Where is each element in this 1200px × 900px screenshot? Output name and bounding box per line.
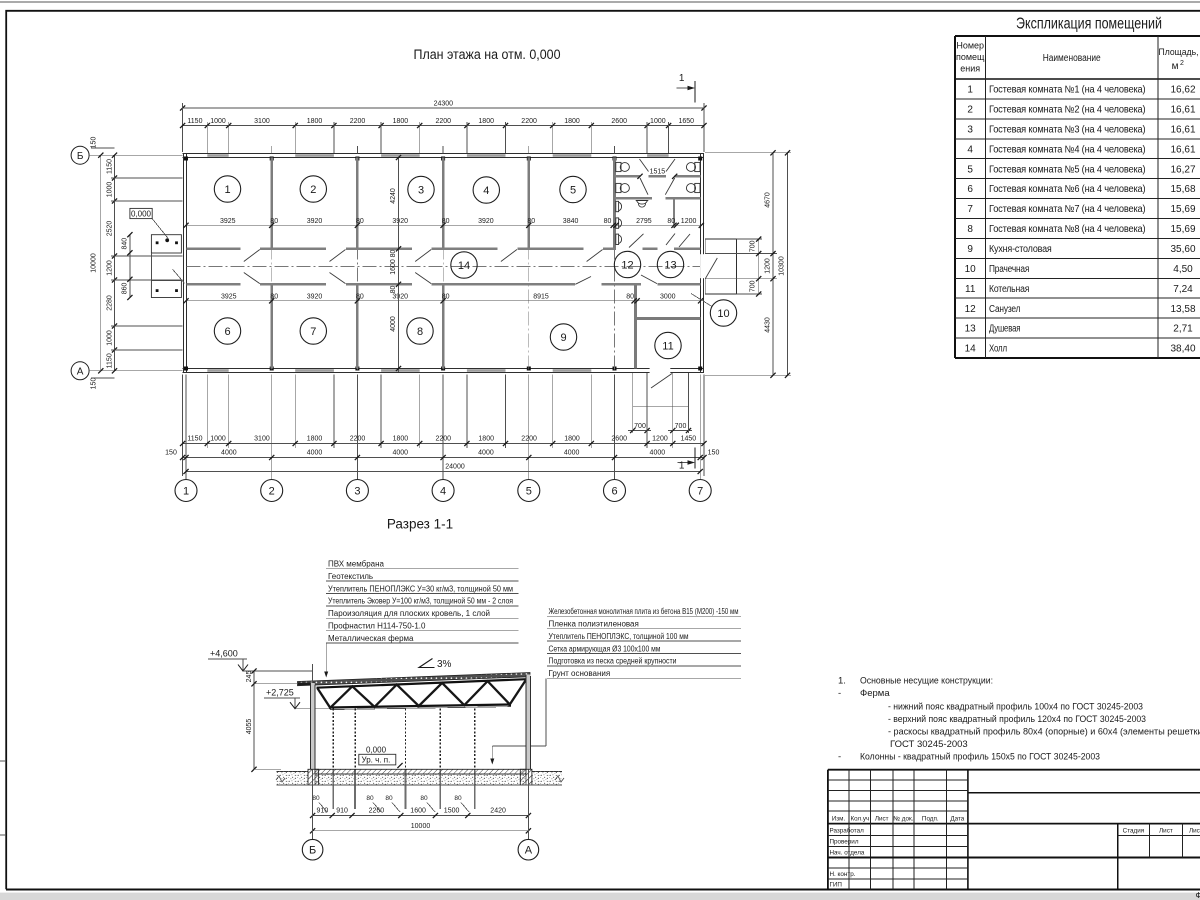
svg-text:910: 910	[336, 808, 348, 815]
svg-text:80: 80	[420, 795, 428, 802]
svg-text:Ур. ч. п.: Ур. ч. п.	[362, 756, 391, 765]
svg-text:150: 150	[91, 137, 98, 149]
svg-text:10: 10	[965, 264, 977, 275]
svg-text:245: 245	[246, 671, 253, 683]
svg-text:Нач. отдела: Нач. отдела	[830, 850, 865, 857]
svg-text:14: 14	[458, 260, 470, 272]
svg-text:4: 4	[440, 486, 446, 498]
svg-text:2200: 2200	[521, 436, 537, 443]
svg-text:Разработал: Разработал	[830, 827, 865, 835]
svg-text:Подготовка из песка средней кр: Подготовка из песка средней крупности	[549, 657, 677, 666]
svg-text:Гостевая комната №2 (на 4 чело: Гостевая комната №2 (на 4 человека)	[989, 105, 1145, 116]
svg-text:24000: 24000	[445, 464, 465, 471]
svg-text:1800: 1800	[478, 118, 494, 125]
svg-text:Наименование: Наименование	[1043, 53, 1101, 64]
svg-text:9: 9	[967, 244, 973, 255]
svg-text:80: 80	[312, 795, 320, 802]
svg-text:+2,725: +2,725	[266, 688, 294, 698]
svg-text:1000: 1000	[106, 330, 113, 346]
svg-text:Листов: Листов	[1189, 828, 1200, 835]
svg-text:Холл: Холл	[989, 344, 1007, 355]
svg-text:Пленка полиэтиленовая: Пленка полиэтиленовая	[549, 620, 639, 629]
svg-text:Лист: Лист	[1159, 828, 1173, 835]
svg-text:16,61: 16,61	[1170, 144, 1195, 155]
svg-text:80: 80	[366, 795, 374, 802]
svg-text:Профнастил Н114-750-1.0: Профнастил Н114-750-1.0	[328, 622, 426, 631]
svg-text:ПВХ мембрана: ПВХ мембрана	[328, 560, 385, 569]
svg-text:Основные несущие конструкции:: Основные несущие конструкции:	[860, 676, 993, 687]
svg-text:8915: 8915	[533, 293, 549, 300]
svg-text:Гостевая комната №1 (на 4 чело: Гостевая комната №1 (на 4 человека)	[989, 85, 1145, 96]
svg-text:Санузел: Санузел	[989, 304, 1021, 315]
svg-text:Утеплитель ПЕНОПЛЭКС У=30 кг/м: Утеплитель ПЕНОПЛЭКС У=30 кг/м3, толщино…	[328, 584, 513, 593]
svg-text:Ферма: Ферма	[860, 688, 890, 699]
svg-text:1: 1	[679, 461, 685, 472]
svg-text:4000: 4000	[650, 450, 666, 457]
svg-text:4670: 4670	[764, 192, 771, 208]
svg-text:3925: 3925	[220, 218, 236, 225]
svg-text:1: 1	[183, 486, 189, 498]
svg-text:8: 8	[417, 326, 423, 338]
svg-text:8: 8	[967, 224, 973, 235]
svg-text:Утеплитель Эковер У=100 кг/м3,: Утеплитель Эковер У=100 кг/м3, толщиной …	[328, 597, 513, 606]
svg-text:Котельная: Котельная	[989, 284, 1029, 295]
svg-text:6: 6	[611, 486, 617, 498]
svg-text:2420: 2420	[490, 808, 506, 815]
svg-text:700: 700	[634, 423, 646, 430]
svg-text:Железобетонная монолитная плит: Железобетонная монолитная плита из бетон…	[549, 607, 739, 616]
svg-text:№ док.: № док.	[893, 815, 913, 822]
svg-text:Геотекстиль: Геотекстиль	[328, 572, 373, 581]
svg-text:ения: ения	[960, 64, 980, 74]
svg-text:6: 6	[967, 184, 973, 195]
svg-text:3920: 3920	[392, 218, 408, 225]
svg-text:Гостевая комната №6 (на 4 чело: Гостевая комната №6 (на 4 человека)	[989, 184, 1145, 195]
svg-text:0,000: 0,000	[131, 209, 152, 218]
svg-text:13,58: 13,58	[1170, 304, 1195, 315]
svg-text:1: 1	[224, 184, 230, 196]
svg-text:Экспликация помещений: Экспликация помещений	[1016, 16, 1162, 33]
svg-text:16,61: 16,61	[1170, 105, 1195, 116]
svg-text:4430: 4430	[764, 317, 771, 333]
svg-text:Грунт основания: Грунт основания	[549, 669, 611, 678]
svg-text:4000: 4000	[564, 450, 580, 457]
svg-text:1800: 1800	[564, 118, 580, 125]
svg-text:10000: 10000	[411, 823, 431, 830]
svg-text:840: 840	[122, 238, 129, 250]
svg-text:10000: 10000	[90, 253, 97, 273]
svg-text:4,50: 4,50	[1173, 264, 1193, 275]
svg-text:3100: 3100	[254, 436, 270, 443]
svg-text:Формат A3: Формат A3	[1196, 891, 1200, 900]
svg-text:Б: Б	[77, 151, 84, 162]
svg-text:2: 2	[1180, 60, 1184, 67]
svg-text:24300: 24300	[434, 101, 454, 108]
svg-text:1000: 1000	[210, 436, 226, 443]
svg-text:80: 80	[527, 218, 535, 225]
svg-text:1600: 1600	[410, 808, 426, 815]
svg-text:3920: 3920	[478, 218, 494, 225]
svg-text:3%: 3%	[437, 659, 452, 670]
svg-text:1600: 1600	[390, 259, 397, 275]
svg-text:1200: 1200	[681, 218, 697, 225]
svg-text:1515: 1515	[650, 169, 666, 176]
svg-text:Площадь,: Площадь,	[1159, 47, 1199, 58]
svg-text:+4,600: +4,600	[210, 649, 238, 659]
svg-text:80: 80	[270, 218, 278, 225]
svg-text:Гостевая комната №5 (на 4 чело: Гостевая комната №5 (на 4 человека)	[989, 164, 1145, 175]
svg-text:-: -	[838, 752, 841, 763]
svg-text:4: 4	[967, 144, 973, 155]
svg-text:7: 7	[310, 326, 316, 338]
svg-text:3920: 3920	[307, 293, 323, 300]
svg-text:2: 2	[310, 184, 316, 196]
svg-text:- верхний пояс квадратный проф: - верхний пояс квадратный профиль 120х4 …	[888, 714, 1146, 725]
svg-text:12: 12	[965, 304, 977, 315]
svg-text:16,27: 16,27	[1170, 164, 1195, 175]
svg-text:3: 3	[418, 185, 424, 197]
svg-text:11: 11	[965, 284, 976, 295]
svg-text:38,40: 38,40	[1170, 344, 1195, 355]
svg-text:1450: 1450	[681, 436, 697, 443]
svg-text:Кухня-столовая: Кухня-столовая	[989, 244, 1052, 255]
svg-text:7,24: 7,24	[1173, 284, 1193, 295]
svg-text:10: 10	[717, 308, 729, 320]
svg-text:2200: 2200	[436, 118, 452, 125]
svg-text:Гостевая комната №8 (на 4 чело: Гостевая комната №8 (на 4 человека)	[989, 224, 1145, 235]
svg-text:2260: 2260	[369, 808, 385, 815]
svg-text:4000: 4000	[221, 450, 237, 457]
svg-text:Прачечная: Прачечная	[989, 264, 1029, 275]
svg-text:15,68: 15,68	[1170, 184, 1195, 195]
svg-text:80: 80	[356, 218, 364, 225]
svg-text:1500: 1500	[444, 808, 460, 815]
svg-text:1650: 1650	[679, 118, 695, 125]
svg-text:15,69: 15,69	[1170, 204, 1195, 215]
svg-text:А: А	[525, 845, 533, 857]
svg-text:План этажа на отм. 0,000: План этажа на отм. 0,000	[414, 47, 561, 62]
svg-text:9: 9	[560, 332, 566, 344]
svg-text:1800: 1800	[307, 118, 323, 125]
svg-text:0,000: 0,000	[366, 746, 387, 755]
svg-text:4055: 4055	[246, 719, 253, 735]
svg-text:150: 150	[708, 450, 720, 457]
svg-text:4: 4	[483, 185, 489, 197]
svg-text:35,60: 35,60	[1170, 244, 1195, 255]
svg-text:Кол.уч: Кол.уч	[850, 815, 869, 822]
svg-text:2200: 2200	[350, 118, 366, 125]
svg-text:16,61: 16,61	[1170, 124, 1195, 135]
svg-text:15,69: 15,69	[1170, 224, 1195, 235]
svg-text:80: 80	[356, 293, 364, 300]
svg-text:1800: 1800	[564, 436, 580, 443]
svg-text:- нижний пояс квадратный профи: - нижний пояс квадратный профиль 100х4 п…	[888, 702, 1143, 713]
svg-text:2,71: 2,71	[1173, 324, 1193, 335]
svg-text:Проверил: Проверил	[830, 839, 859, 846]
svg-text:13: 13	[965, 324, 977, 335]
svg-text:4000: 4000	[478, 450, 494, 457]
svg-text:1: 1	[967, 85, 973, 96]
svg-text:ГОСТ 30245-2003: ГОСТ 30245-2003	[890, 739, 968, 750]
svg-text:910: 910	[317, 808, 329, 815]
svg-text:2: 2	[967, 105, 973, 116]
svg-text:13: 13	[664, 260, 676, 272]
svg-text:2200: 2200	[521, 118, 537, 125]
svg-text:80: 80	[385, 795, 393, 802]
svg-text:1150: 1150	[187, 436, 202, 443]
svg-text:3920: 3920	[307, 218, 323, 225]
svg-text:1000: 1000	[210, 118, 226, 125]
svg-text:Душевая: Душевая	[989, 324, 1020, 335]
svg-text:12: 12	[621, 260, 633, 272]
svg-text:700: 700	[750, 280, 757, 292]
svg-text:150: 150	[165, 450, 177, 457]
svg-text:80: 80	[390, 286, 397, 294]
svg-text:Изм.: Изм.	[832, 815, 846, 822]
svg-text:1800: 1800	[393, 118, 409, 125]
svg-text:1200: 1200	[106, 260, 113, 276]
svg-text:3925: 3925	[221, 293, 237, 300]
svg-text:4000: 4000	[307, 450, 323, 457]
svg-text:14: 14	[965, 344, 977, 355]
svg-text:80: 80	[442, 293, 450, 300]
svg-text:5: 5	[526, 486, 532, 498]
svg-text:6: 6	[224, 326, 230, 338]
svg-text:700: 700	[675, 423, 687, 430]
svg-text:Дата: Дата	[950, 815, 964, 822]
svg-text:2520: 2520	[106, 221, 113, 237]
svg-text:-: -	[838, 688, 841, 699]
svg-text:1150: 1150	[106, 353, 113, 368]
svg-text:4000: 4000	[390, 316, 397, 332]
svg-text:80: 80	[270, 293, 278, 300]
svg-text:1: 1	[679, 73, 685, 84]
svg-text:1000: 1000	[106, 182, 113, 198]
svg-text:Гостевая комната №4 (на 4 чело: Гостевая комната №4 (на 4 человека)	[989, 144, 1145, 155]
svg-text:1800: 1800	[393, 436, 409, 443]
svg-text:Гостевая комната №7 (на 4 чело: Гостевая комната №7 (на 4 человека)	[989, 204, 1145, 215]
svg-text:2600: 2600	[611, 436, 627, 443]
svg-text:1150: 1150	[106, 159, 113, 174]
svg-text:7: 7	[967, 204, 973, 215]
svg-text:80: 80	[626, 293, 634, 300]
svg-text:150: 150	[91, 378, 98, 390]
svg-text:80: 80	[442, 218, 450, 225]
svg-text:Гостевая комната №3 (на 4 чело: Гостевая комната №3 (на 4 человека)	[989, 124, 1145, 135]
svg-text:3000: 3000	[660, 293, 676, 300]
svg-text:м: м	[1172, 61, 1179, 72]
svg-text:2: 2	[269, 486, 275, 498]
svg-text:1.: 1.	[838, 676, 846, 687]
svg-text:1000: 1000	[650, 118, 666, 125]
svg-text:1150: 1150	[187, 118, 202, 125]
svg-text:80: 80	[667, 218, 675, 225]
svg-text:3840: 3840	[563, 218, 579, 225]
svg-text:А: А	[77, 366, 84, 377]
svg-text:2200: 2200	[436, 436, 452, 443]
svg-text:80: 80	[604, 218, 612, 225]
svg-text:Металлическая ферма: Металлическая ферма	[328, 634, 414, 643]
svg-text:Н. контр.: Н. контр.	[830, 871, 856, 878]
svg-text:2200: 2200	[350, 436, 366, 443]
svg-text:2600: 2600	[611, 118, 627, 125]
svg-text:Сетка армирующая Ø3 100х100 мм: Сетка армирующая Ø3 100х100 мм	[549, 644, 661, 653]
svg-text:4240: 4240	[390, 188, 397, 204]
svg-text:Пароизоляция для плоских крове: Пароизоляция для плоских кровель, 1 слой	[328, 609, 490, 618]
svg-text:Подп.: Подп.	[922, 815, 939, 822]
svg-text:10300: 10300	[778, 256, 785, 276]
svg-text:- раскосы квадратный профиль 8: - раскосы квадратный профиль 80х4 (опорн…	[888, 727, 1200, 738]
svg-text:1200: 1200	[764, 258, 771, 274]
svg-text:2795: 2795	[636, 218, 652, 225]
svg-text:ГИП: ГИП	[830, 882, 843, 889]
svg-text:3: 3	[967, 124, 973, 135]
svg-text:80: 80	[454, 795, 462, 802]
svg-text:700: 700	[750, 240, 757, 252]
svg-text:Стадия: Стадия	[1123, 828, 1144, 835]
svg-text:3100: 3100	[254, 118, 270, 125]
svg-text:помещ: помещ	[956, 52, 985, 62]
svg-text:80: 80	[390, 250, 397, 258]
svg-text:7: 7	[697, 486, 703, 498]
svg-text:1800: 1800	[478, 436, 494, 443]
svg-text:Разрез 1-1: Разрез 1-1	[387, 517, 453, 532]
svg-text:Утеплитель ПЕНОПЛЭКС, толщиной: Утеплитель ПЕНОПЛЭКС, толщиной 100 мм	[549, 632, 689, 641]
svg-text:Лист: Лист	[875, 815, 889, 822]
svg-text:Номер: Номер	[956, 41, 984, 51]
svg-text:5: 5	[570, 185, 576, 197]
svg-text:1800: 1800	[307, 436, 323, 443]
svg-text:860: 860	[122, 282, 129, 294]
svg-text:11: 11	[662, 341, 673, 353]
svg-text:3: 3	[354, 486, 360, 498]
svg-text:Колонны - квадратный профиль 1: Колонны - квадратный профиль 150х5 по ГО…	[860, 752, 1100, 763]
svg-text:5: 5	[967, 164, 973, 175]
svg-text:2280: 2280	[106, 295, 113, 311]
svg-text:4000: 4000	[392, 450, 408, 457]
svg-text:16,62: 16,62	[1170, 85, 1195, 96]
svg-text:1200: 1200	[652, 436, 668, 443]
svg-text:Б: Б	[309, 845, 316, 857]
